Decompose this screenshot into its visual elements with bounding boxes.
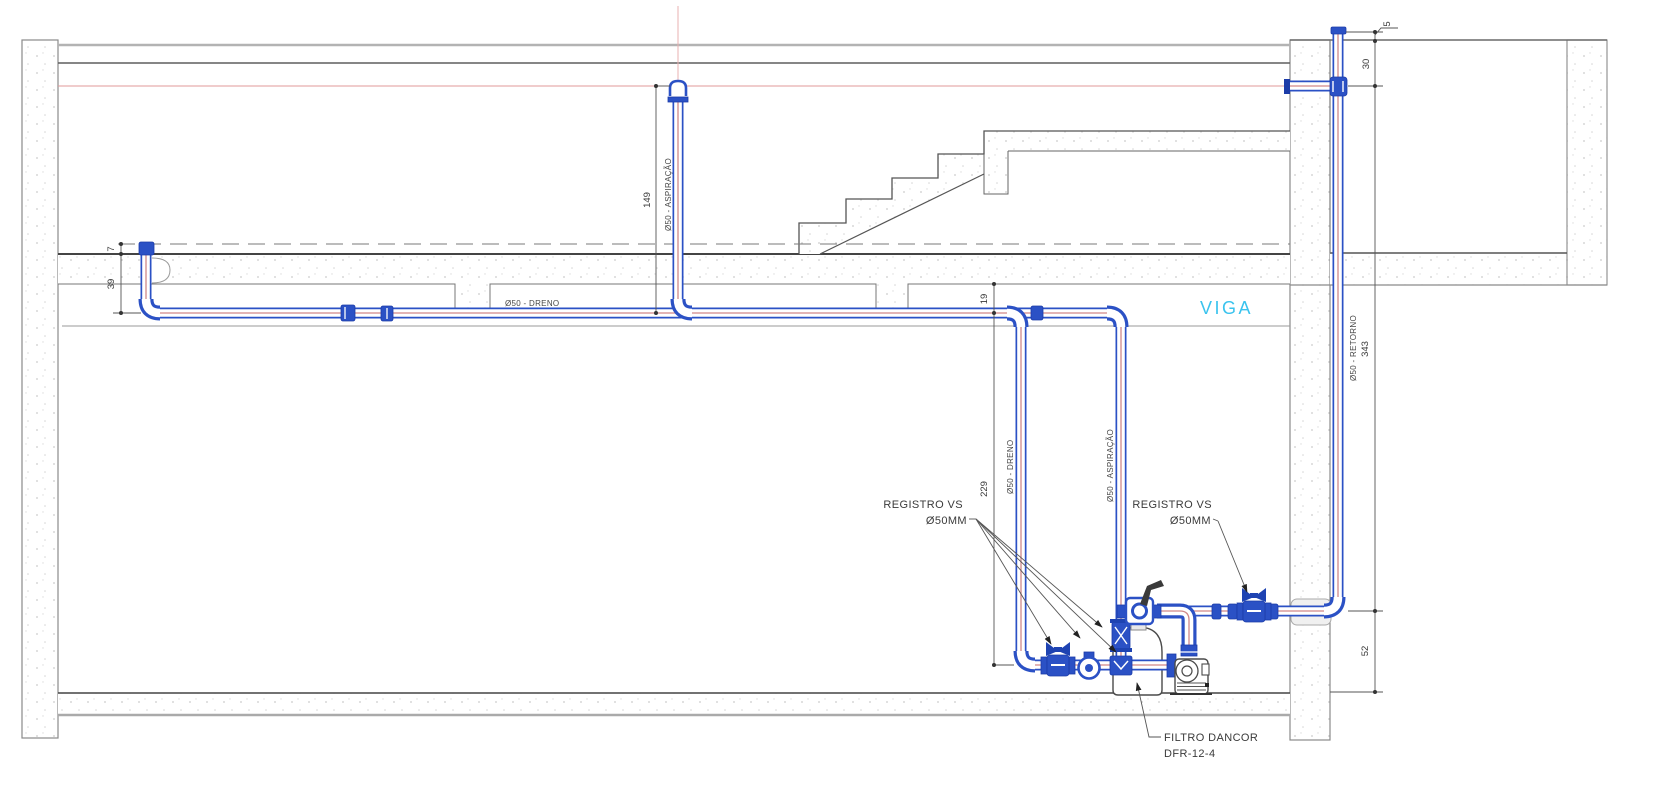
tank-right-wall bbox=[1567, 40, 1607, 285]
dimensions: 7 39 149 19 229 5 30 343 52 bbox=[106, 21, 1398, 694]
dim-19: 19 bbox=[979, 294, 990, 305]
registro-right-line1: REGISTRO VS bbox=[1132, 499, 1212, 511]
pump-discharge-neck bbox=[1181, 645, 1197, 656]
drain-pipe-run bbox=[146, 244, 1171, 665]
label-suction-riser-pool: Ø50 - ASPIRAÇÃO bbox=[664, 158, 673, 231]
return-top-cap bbox=[1331, 27, 1346, 34]
dim-149: 149 bbox=[642, 192, 653, 208]
manifold-tee bbox=[1110, 656, 1132, 675]
label-return-riser: Ø50 - RETORNO bbox=[1349, 315, 1358, 381]
pump bbox=[1167, 645, 1212, 694]
ball-valve-right bbox=[1237, 588, 1271, 622]
filter-label-line2: DFR-12-4 bbox=[1164, 748, 1216, 760]
dim-7: 7 bbox=[106, 246, 117, 251]
leader-to-ball-valve-right bbox=[1218, 521, 1247, 592]
dim-229: 229 bbox=[979, 481, 990, 497]
leader-to-ball-valve-left bbox=[976, 519, 1051, 644]
drawing-canvas: 7 39 149 19 229 5 30 343 52 Ø50 - DRENO … bbox=[0, 0, 1667, 800]
dim-5: 5 bbox=[1382, 21, 1393, 26]
left-wall bbox=[22, 40, 58, 738]
check-valve-fitting bbox=[1079, 652, 1100, 679]
dim-30: 30 bbox=[1361, 59, 1372, 70]
label-drain-riser: Ø50 - DRENO bbox=[1006, 440, 1015, 494]
registro-left-line2: Ø50MM bbox=[926, 515, 967, 527]
stair-landing-fill bbox=[984, 131, 1290, 194]
drain-coupling-1 bbox=[341, 305, 355, 321]
leader-to-check-fitting bbox=[976, 519, 1080, 638]
stair-steps-fill bbox=[799, 154, 984, 254]
annotations: Ø50 - DRENO Ø50 - ASPIRAÇÃO Ø50 - DRENO … bbox=[505, 158, 1358, 760]
suction-coupling bbox=[1031, 306, 1043, 320]
leader-to-manifold-tee bbox=[976, 519, 1116, 652]
ground-floor-slab bbox=[58, 693, 1290, 715]
pipe-elbows bbox=[146, 77, 1347, 665]
concrete-structure bbox=[22, 40, 1607, 740]
right-column bbox=[1290, 40, 1330, 740]
viga-label: VIGA bbox=[1200, 298, 1253, 318]
return-coupling-2 bbox=[1228, 604, 1237, 619]
tank-floor-slab bbox=[1330, 253, 1607, 285]
leader-to-suction-union bbox=[976, 519, 1102, 627]
registro-left-line1: REGISTRO VS bbox=[883, 499, 963, 511]
skimmer-coupling bbox=[139, 242, 154, 255]
pool-plumbing-section-drawing: 7 39 149 19 229 5 30 343 52 Ø50 - DRENO … bbox=[0, 0, 1667, 800]
piping bbox=[139, 27, 1347, 665]
stair-landing-soffit bbox=[984, 151, 1290, 194]
label-drain-underfloor: Ø50 - DRENO bbox=[505, 299, 559, 308]
ball-valve-left bbox=[1041, 642, 1075, 676]
dim-343: 343 bbox=[1360, 341, 1371, 357]
pipe-fittings bbox=[139, 27, 1346, 619]
dim-52: 52 bbox=[1360, 646, 1371, 657]
label-suction-riser: Ø50 - ASPIRAÇÃO bbox=[1106, 429, 1115, 502]
suction-point-cap bbox=[670, 81, 686, 96]
registro-right-line2: Ø50MM bbox=[1170, 515, 1211, 527]
return-coupling-1 bbox=[1212, 604, 1221, 619]
filter-label-line1: FILTRO DANCOR bbox=[1164, 732, 1258, 744]
dim-39: 39 bbox=[106, 279, 117, 290]
return-nozzle-cap bbox=[1284, 79, 1290, 94]
